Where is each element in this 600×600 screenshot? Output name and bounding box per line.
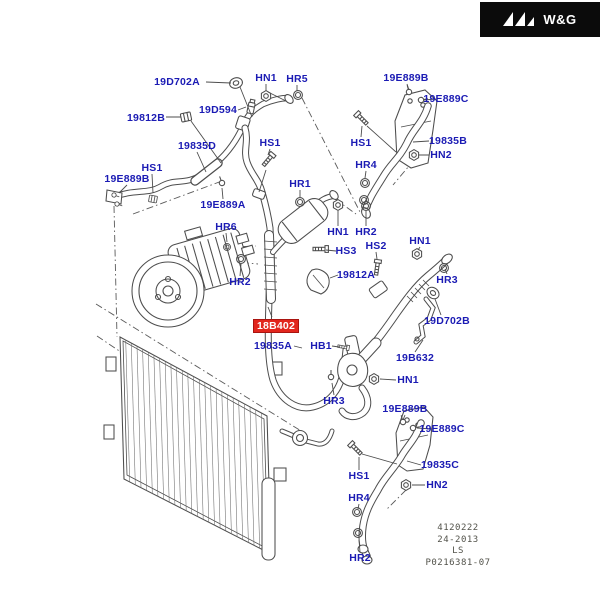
part-label-19835d[interactable]: 19835D [178,140,216,152]
part-label-19835a[interactable]: 19835A [254,340,292,352]
parts-diagram-page: 19D702AHN1HR519E889B19E889C19D59419812B1… [0,0,600,600]
plate-line: LS [408,546,508,558]
part-label-hs2[interactable]: HS2 [365,240,386,252]
part-label-19e889b[interactable]: 19E889B [383,72,428,84]
part-label-hb1[interactable]: HB1 [310,340,332,352]
part-label-hr2[interactable]: HR2 [349,552,371,564]
part-label-hs1[interactable]: HS1 [259,137,280,149]
part-label-hn1[interactable]: HN1 [255,72,277,84]
part-label-hr2[interactable]: HR2 [355,226,377,238]
part-label-hr2[interactable]: HR2 [229,276,251,288]
part-label-hr4[interactable]: HR4 [348,492,370,504]
plate-text: 412022224-2013LSP0216381-07 [408,523,508,569]
part-label-19812b[interactable]: 19812B [127,112,165,124]
part-label-hr6[interactable]: HR6 [215,221,237,233]
part-label-hr1[interactable]: HR1 [289,178,311,190]
brand-text: W&G [543,12,576,27]
part-label-hn2[interactable]: HN2 [430,149,452,161]
part-label-19d702b[interactable]: 19D702B [424,315,470,327]
part-label-19812a[interactable]: 19812A [337,269,375,281]
part-label-19e889b[interactable]: 19E889B [104,173,149,185]
part-label-hr3[interactable]: HR3 [436,274,458,286]
labels-layer: 19D702AHN1HR519E889B19E889C19D59419812B1… [0,0,600,600]
part-label-19e889c[interactable]: 19E889C [423,93,468,105]
part-label-hn2[interactable]: HN2 [426,479,448,491]
part-label-hs3[interactable]: HS3 [335,245,356,257]
plate-line: 24-2013 [408,535,508,547]
part-label-19b632[interactable]: 19B632 [396,352,434,364]
part-label-19d594[interactable]: 19D594 [199,104,237,116]
plate-line: 4120222 [408,523,508,535]
part-label-19e889a[interactable]: 19E889A [200,199,245,211]
part-label-19835b[interactable]: 19835B [429,135,467,147]
part-label-19d702a[interactable]: 19D702A [154,76,200,88]
part-label-hs1[interactable]: HS1 [350,137,371,149]
part-label-hs1[interactable]: HS1 [348,470,369,482]
part-label-hr5[interactable]: HR5 [286,73,308,85]
part-label-19835c[interactable]: 19835C [421,459,459,471]
part-label-hn1[interactable]: HN1 [397,374,419,386]
part-label-hn1[interactable]: HN1 [327,226,349,238]
part-label-hr4[interactable]: HR4 [355,159,377,171]
part-label-hn1[interactable]: HN1 [409,235,431,247]
brand-logo: W&G [480,2,600,37]
part-label-19e889b[interactable]: 19E889B [382,403,427,415]
triple-chevron-icon [503,12,536,27]
part-label-19e889c[interactable]: 19E889C [419,423,464,435]
plate-line: P0216381-07 [408,558,508,570]
part-label-hr3[interactable]: HR3 [323,395,345,407]
part-label-18b402[interactable]: 18B402 [253,319,299,333]
